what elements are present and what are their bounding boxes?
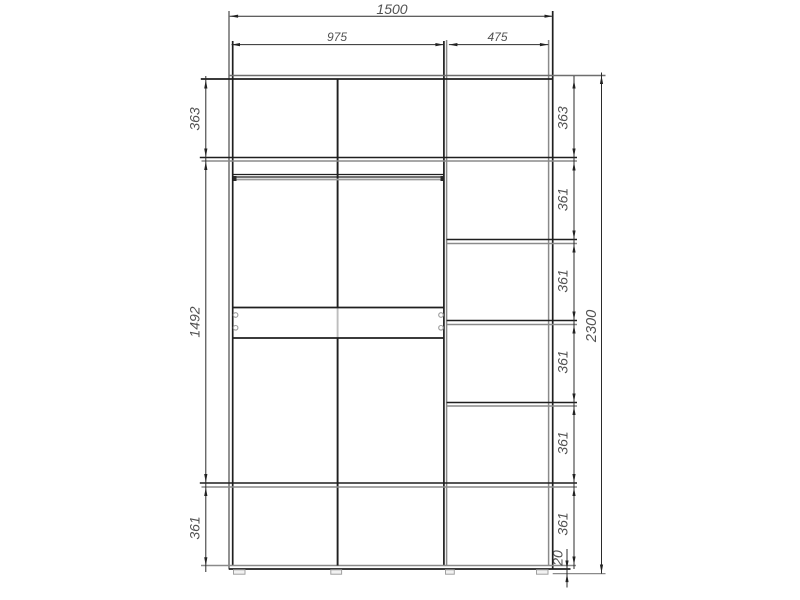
svg-text:1500: 1500 xyxy=(376,1,407,17)
svg-text:975: 975 xyxy=(327,30,347,44)
svg-text:361: 361 xyxy=(187,516,203,539)
svg-text:475: 475 xyxy=(487,30,507,44)
svg-text:363: 363 xyxy=(187,107,203,131)
svg-text:361: 361 xyxy=(554,350,570,373)
svg-text:2300: 2300 xyxy=(584,310,600,343)
svg-text:363: 363 xyxy=(554,106,570,130)
svg-text:361: 361 xyxy=(554,269,570,292)
svg-text:20: 20 xyxy=(550,550,566,567)
svg-text:361: 361 xyxy=(554,431,570,454)
svg-text:361: 361 xyxy=(554,188,570,211)
svg-text:361: 361 xyxy=(554,512,570,535)
svg-text:1492: 1492 xyxy=(187,306,203,337)
